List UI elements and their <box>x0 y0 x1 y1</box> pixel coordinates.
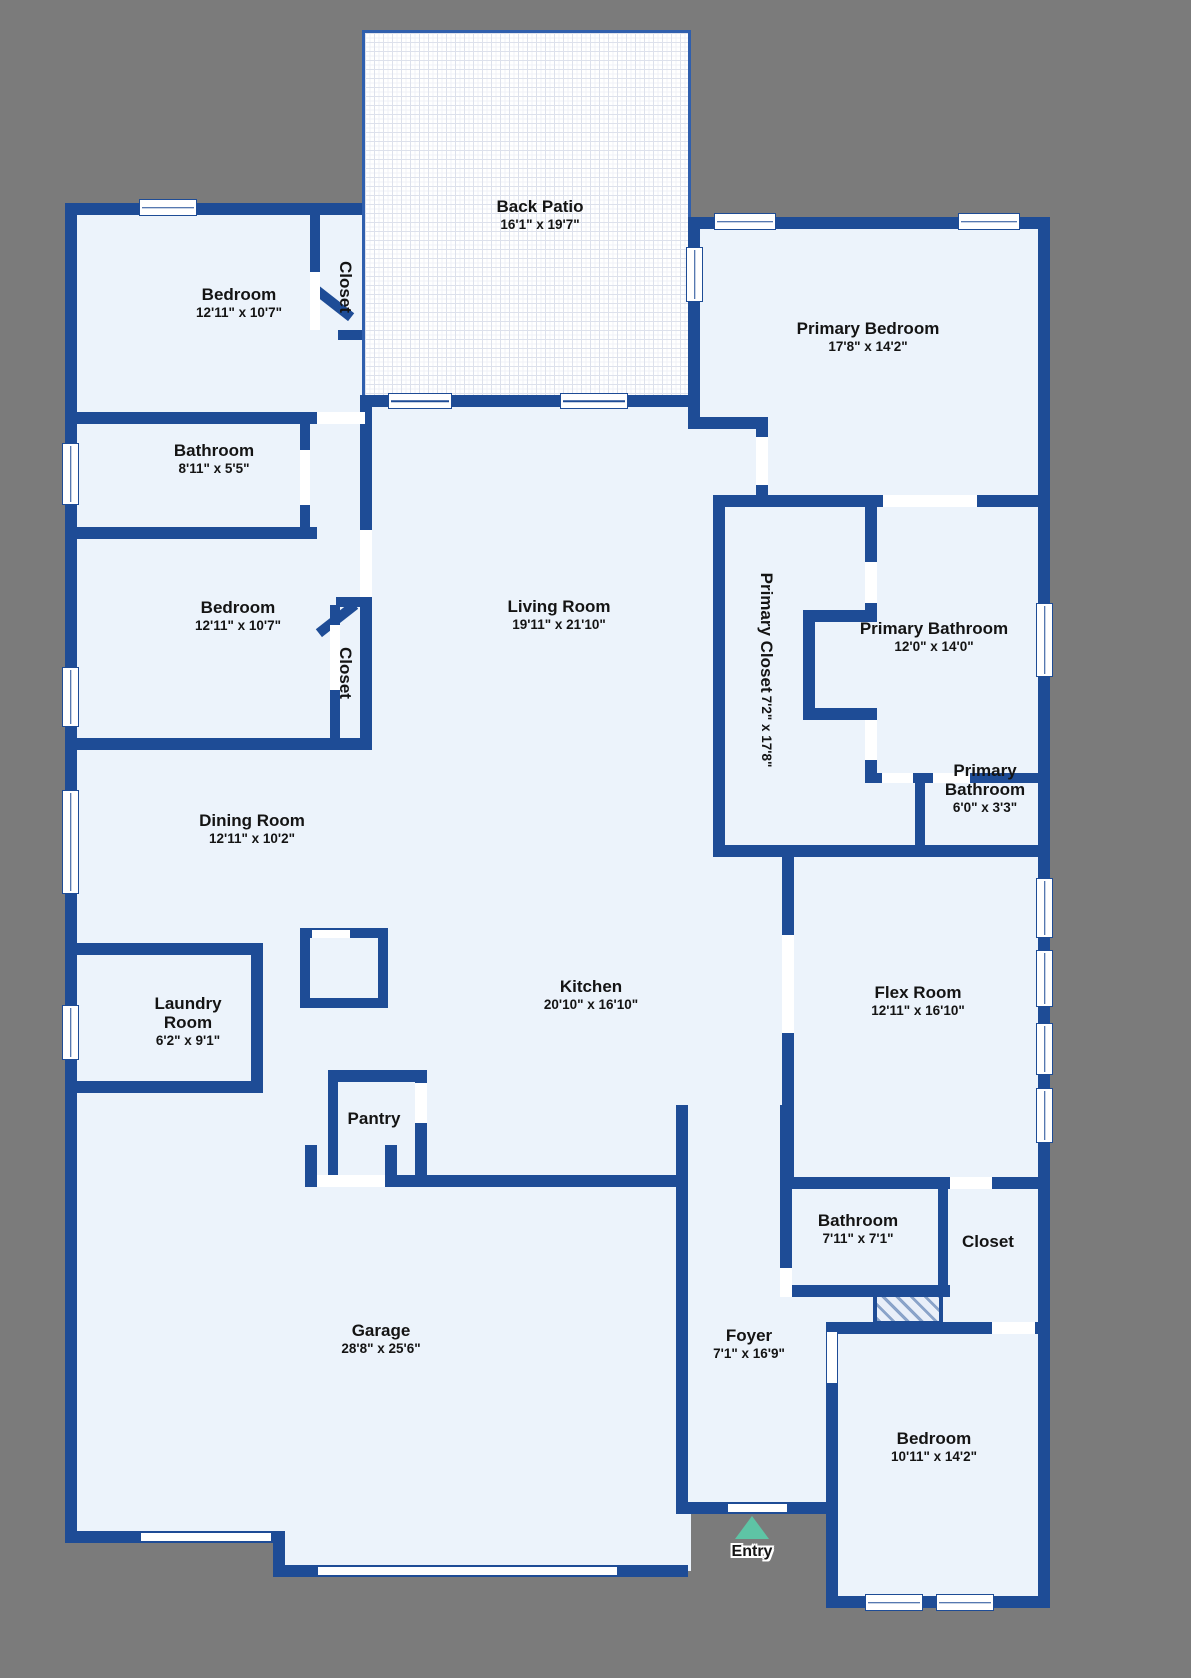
window <box>62 443 79 505</box>
wall-segment <box>803 610 815 720</box>
room-dimensions: 12'11" x 10'7" <box>196 304 282 322</box>
room-label: Primary Closet7'2" x 17'8" <box>757 573 775 768</box>
wall-segment <box>328 1070 338 1177</box>
wall-segment <box>300 928 310 1008</box>
wall-segment <box>300 998 388 1008</box>
window <box>62 667 79 727</box>
wall-segment <box>65 738 372 750</box>
room-name-line2: Bathroom <box>945 780 1025 799</box>
room-dimensions: 19'11" x 21'10" <box>508 616 611 634</box>
window-pane-line <box>1044 1026 1046 1072</box>
window-pane-line <box>717 221 773 223</box>
room-name: Back Patio <box>497 197 584 216</box>
room-label: Bedroom12'11" x 10'7" <box>195 598 281 635</box>
hatched-cabinet <box>873 1293 943 1325</box>
wall-segment <box>713 495 725 857</box>
door-opening <box>360 530 372 597</box>
window <box>62 1005 79 1060</box>
window <box>388 393 452 409</box>
room-label: Foyer7'1" x 16'9" <box>713 1326 785 1363</box>
room-name: Bathroom <box>818 1211 898 1230</box>
room-name: Kitchen <box>544 977 638 996</box>
wall-segment <box>328 1070 427 1082</box>
room-label: Dining Room12'11" x 10'2" <box>199 811 305 848</box>
room-label: Bedroom10'11" x 14'2" <box>891 1429 977 1466</box>
window <box>1036 1088 1053 1143</box>
room-label: LaundryRoom6'2" x 9'1" <box>154 994 221 1050</box>
window-pane-line <box>391 400 449 402</box>
window-pane-line <box>142 207 194 209</box>
wall-segment <box>385 1145 397 1187</box>
window-pane-line <box>939 1602 991 1604</box>
room-name: Laundry <box>154 994 221 1013</box>
floor-plan: Back Patio16'1" x 19'7"Bedroom12'11" x 1… <box>0 0 1191 1678</box>
room-name: Garage <box>341 1321 420 1340</box>
door-opening <box>780 1268 792 1297</box>
room-dimensions: 12'11" x 10'2" <box>199 830 305 848</box>
floor-area <box>688 217 1050 1514</box>
room-label: Closet <box>336 261 354 313</box>
wall-segment <box>780 1177 1050 1189</box>
room-dimensions: 10'11" x 14'2" <box>891 1448 977 1466</box>
room-label: Pantry <box>348 1109 401 1128</box>
floor-area <box>285 1400 365 1570</box>
wall-segment <box>305 1145 317 1187</box>
room-label: Bathroom7'11" x 7'1" <box>818 1211 898 1248</box>
door-opening <box>312 930 350 938</box>
window-pane-line <box>961 221 1017 223</box>
window-pane-line <box>1044 1091 1046 1140</box>
door-opening <box>317 412 365 424</box>
wall-segment <box>65 203 362 215</box>
garage-door <box>140 1532 272 1542</box>
room-name: Pantry <box>348 1109 401 1128</box>
window-pane-line <box>563 400 625 402</box>
window <box>1036 950 1053 1007</box>
room-name: Primary Bedroom <box>797 319 940 338</box>
window <box>1036 1023 1053 1075</box>
window <box>139 199 197 216</box>
window <box>714 213 776 230</box>
window <box>1036 878 1053 938</box>
window <box>1036 603 1053 677</box>
door-opening <box>310 272 320 330</box>
door-opening <box>782 935 794 1033</box>
room-name: Dining Room <box>199 811 305 830</box>
room-name: Closet <box>962 1232 1014 1251</box>
wall-segment <box>65 943 263 955</box>
window <box>560 393 628 409</box>
window-pane-line <box>70 446 72 502</box>
door-opening <box>756 437 768 485</box>
window-pane-line <box>694 250 696 299</box>
door-opening <box>865 720 877 760</box>
wall-segment <box>938 1189 948 1297</box>
wall-segment <box>676 1105 688 1514</box>
room-name: Closet <box>336 647 354 699</box>
door-opening <box>992 1322 1035 1334</box>
room-label: Flex Room12'11" x 16'10" <box>871 983 965 1020</box>
wall-segment <box>251 955 263 1093</box>
wall-segment <box>65 412 317 424</box>
room-name: Living Room <box>508 597 611 616</box>
window-pane-line <box>70 793 72 891</box>
room-dimensions: 6'2" x 9'1" <box>154 1032 221 1050</box>
room-label: Garage28'8" x 25'6" <box>341 1321 420 1358</box>
entry-label: Entry <box>732 1543 773 1561</box>
garage-door <box>317 1566 618 1576</box>
room-name-line2: Room <box>154 1013 221 1032</box>
window-pane-line <box>1044 953 1046 1004</box>
door-opening <box>865 562 877 603</box>
room-name: Primary Closet <box>757 573 775 693</box>
wall-segment <box>378 928 388 1008</box>
wall-segment <box>310 215 320 272</box>
door-opening <box>317 1175 385 1187</box>
room-name: Flex Room <box>871 983 965 1002</box>
floor-area <box>65 203 362 1543</box>
room-label: Kitchen20'10" x 16'10" <box>544 977 638 1014</box>
window <box>936 1594 994 1611</box>
entry-arrow-icon <box>735 1516 769 1539</box>
window <box>686 247 703 302</box>
door-opening <box>415 1083 427 1123</box>
room-label: Closet <box>336 647 354 699</box>
room-dimensions: 7'1" x 16'9" <box>713 1345 785 1363</box>
door-opening <box>882 773 913 783</box>
room-dimensions: 12'11" x 16'10" <box>871 1002 965 1020</box>
room-dimensions: 7'11" x 7'1" <box>818 1230 898 1248</box>
room-name: Bathroom <box>174 441 254 460</box>
wall-segment <box>865 507 877 562</box>
window-pane-line <box>1044 881 1046 935</box>
room-name: Bedroom <box>891 1429 977 1448</box>
window <box>62 790 79 894</box>
room-dimensions: 20'10" x 16'10" <box>544 996 638 1014</box>
room-dimensions: 7'2" x 17'8" <box>757 696 775 768</box>
room-name: Foyer <box>713 1326 785 1345</box>
door-opening <box>950 1177 992 1189</box>
door-opening <box>827 1332 837 1383</box>
window-pane-line <box>1044 606 1046 674</box>
room-name: Bedroom <box>195 598 281 617</box>
wall-segment <box>803 708 877 720</box>
room-dimensions: 17'8" x 14'2" <box>797 338 940 356</box>
room-name: Closet <box>336 261 354 313</box>
room-label: Bedroom12'11" x 10'7" <box>196 285 282 322</box>
floor-area <box>352 395 691 1571</box>
room-label: PrimaryBathroom6'0" x 3'3" <box>945 761 1025 817</box>
wall-segment <box>713 845 1050 857</box>
room-label: Living Room19'11" x 21'10" <box>508 597 611 634</box>
room-dimensions: 28'8" x 25'6" <box>341 1340 420 1358</box>
room-label: Bathroom8'11" x 5'5" <box>174 441 254 478</box>
wall-segment <box>338 330 362 340</box>
room-label: Primary Bedroom17'8" x 14'2" <box>797 319 940 356</box>
room-label: Back Patio16'1" x 19'7" <box>497 197 584 234</box>
room-label: Closet <box>962 1232 1014 1251</box>
window <box>958 213 1020 230</box>
room-label: Primary Bathroom12'0" x 14'0" <box>860 619 1008 656</box>
room-dimensions: 6'0" x 3'3" <box>945 799 1025 817</box>
wall-segment <box>65 1081 263 1093</box>
room-dimensions: 12'11" x 10'7" <box>195 617 281 635</box>
door-opening <box>883 495 977 507</box>
window <box>865 1594 923 1611</box>
window-pane-line <box>70 670 72 724</box>
door-opening <box>728 1504 787 1512</box>
window-pane-line <box>70 1008 72 1057</box>
room-dimensions: 16'1" x 19'7" <box>497 216 584 234</box>
door-opening <box>300 450 310 505</box>
room-name: Primary Bathroom <box>860 619 1008 638</box>
room-name: Primary <box>945 761 1025 780</box>
wall-segment <box>65 527 317 539</box>
room-dimensions: 12'0" x 14'0" <box>860 638 1008 656</box>
room-dimensions: 8'11" x 5'5" <box>174 460 254 478</box>
room-name: Bedroom <box>196 285 282 304</box>
window-pane-line <box>868 1602 920 1604</box>
wall-segment <box>713 495 1050 507</box>
